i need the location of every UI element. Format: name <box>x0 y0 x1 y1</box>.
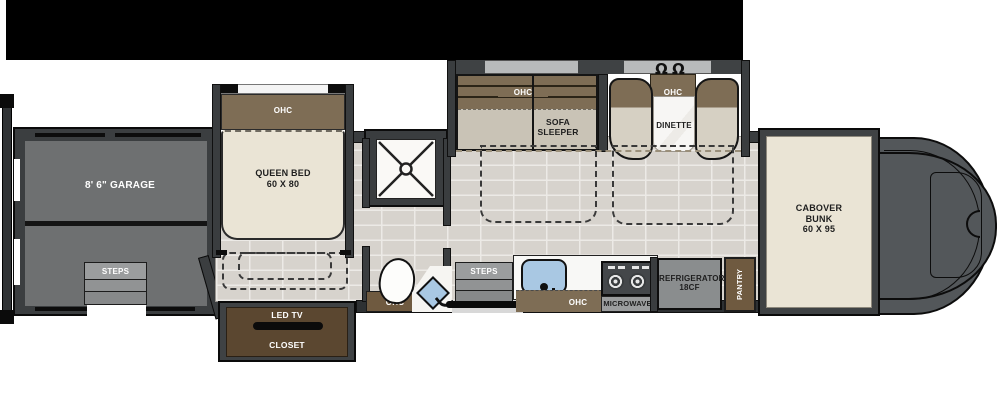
awning-bar <box>6 0 743 60</box>
led-tv-label: LED TV <box>227 310 347 320</box>
pantry-label: PANTRY <box>726 259 754 310</box>
stove-knob-icon <box>632 266 639 269</box>
queen-slide-wall-left <box>212 84 221 258</box>
shower-drain-icon <box>377 140 435 198</box>
garage-steps-bottom <box>84 291 147 305</box>
queen-slide-bracket-right <box>328 84 345 93</box>
pantry: PANTRY <box>724 257 756 312</box>
bed-extension-outline-inner <box>238 252 332 280</box>
sofa-label-line2: SLEEPER <box>537 127 578 137</box>
entry-grab-handle <box>446 301 526 308</box>
tv-icon <box>253 322 323 330</box>
kitchen-ohc-label: OHC <box>554 298 602 307</box>
rear-bumper <box>2 94 12 324</box>
garage-steps-top: STEPS <box>84 262 147 280</box>
closet-box: LED TV CLOSET <box>226 307 348 357</box>
sofa-label-line1: SOFA <box>546 117 570 127</box>
stove-knob-icon <box>618 266 625 269</box>
bedroom-ohc-label: OHC <box>222 106 344 115</box>
sofa-extension-outline <box>480 145 597 223</box>
sofa-ohc-label: OHC <box>498 88 548 97</box>
rear-bumper-cap-top <box>0 94 14 108</box>
stove-knob-icon <box>642 266 649 269</box>
garage-label: 8' 6" GARAGE <box>45 180 195 192</box>
entry-steps-top: STEPS <box>455 262 513 280</box>
bath-wall-left-upper <box>362 138 370 208</box>
stove-knob-icon <box>608 266 615 269</box>
sofa-seat: SOFA SLEEPER <box>458 109 596 149</box>
refrigerator: REFRIGERATOR 18CF <box>657 258 722 310</box>
sofa-sleeper: OHC SOFA SLEEPER <box>456 74 598 151</box>
refrigerator-label-line1: REFRIGERATOR <box>659 274 725 283</box>
dinette-chair-icon: Ω <box>672 60 685 78</box>
living-slide-block-mid <box>578 60 624 74</box>
refrigerator-label: REFRIGERATOR 18CF <box>659 274 720 293</box>
bed-extension-mark-right <box>340 250 351 255</box>
sofa-shelf-line-1 <box>458 85 596 87</box>
stove <box>601 261 652 296</box>
cabover-label-line3: 60 X 95 <box>803 224 835 234</box>
bedroom-ohc-cabinet: OHC <box>221 94 345 130</box>
garage-rail-top-left <box>35 133 105 137</box>
queen-slide-wall-right <box>345 84 354 258</box>
queen-slideout: OHC QUEEN BED 60 X 80 <box>212 84 354 258</box>
sofa-dinette-divider-wall <box>598 74 608 152</box>
dinette-label: DINETTE <box>654 121 694 130</box>
garage-wall-slot-top <box>14 159 20 201</box>
dinette-table: DINETTE <box>653 96 695 152</box>
garage-rail-bottom-left <box>35 307 90 311</box>
cabover-bunk: CABOVER BUNK 60 X 95 <box>766 136 872 308</box>
cabover-label-line1: CABOVER <box>796 203 842 213</box>
queen-bed: QUEEN BED 60 X 80 <box>221 130 345 240</box>
queen-slide-bracket-left <box>221 84 238 93</box>
dinette-chair-icon: Ω <box>655 60 668 78</box>
closet-slideout: LED TV CLOSET <box>218 301 356 362</box>
refrigerator-label-line2: 18CF <box>679 283 699 292</box>
kitchen-ohc-cabinet: OHC <box>516 290 602 312</box>
stove-burner-icon <box>607 273 624 290</box>
closet-label: CLOSET <box>227 340 347 350</box>
sofa-ohc-band: OHC <box>458 76 596 109</box>
cabover-bunk-label: CABOVER BUNK 60 X 95 <box>767 203 871 235</box>
bed-extension-mark-left <box>216 250 227 255</box>
queen-bed-label-line2: 60 X 80 <box>223 179 343 190</box>
rear-bumper-cap-bottom <box>0 310 14 324</box>
living-slide-wall-right <box>741 60 750 157</box>
sofa-divider <box>532 76 534 149</box>
queen-bed-label-line1: QUEEN BED <box>223 168 343 179</box>
microwave: MICROWAVE <box>601 296 654 312</box>
shower <box>364 129 448 207</box>
garage-divider <box>25 221 207 226</box>
cabover-label-line2: BUNK <box>806 214 833 224</box>
garage-steps: STEPS <box>84 262 147 313</box>
shower-pan <box>376 139 436 199</box>
cabover-bunk-frame: CABOVER BUNK 60 X 95 <box>758 128 880 316</box>
rv-floorplan: 8' 6" GARAGE STEPS OHC QUEEN BED 60 X 80 <box>0 0 1000 419</box>
entry-steps: STEPS <box>455 262 513 302</box>
dinette-extension-outline <box>612 145 734 225</box>
living-slide-wall-left <box>447 60 456 157</box>
microwave-label: MICROWAVE <box>602 300 653 309</box>
queen-slide-top-strip <box>221 84 345 94</box>
living-slide-block-left <box>451 60 485 74</box>
garage-rail-top-right <box>115 133 201 137</box>
garage-wall-slot-bottom <box>14 239 20 285</box>
stove-burner-icon <box>629 273 646 290</box>
